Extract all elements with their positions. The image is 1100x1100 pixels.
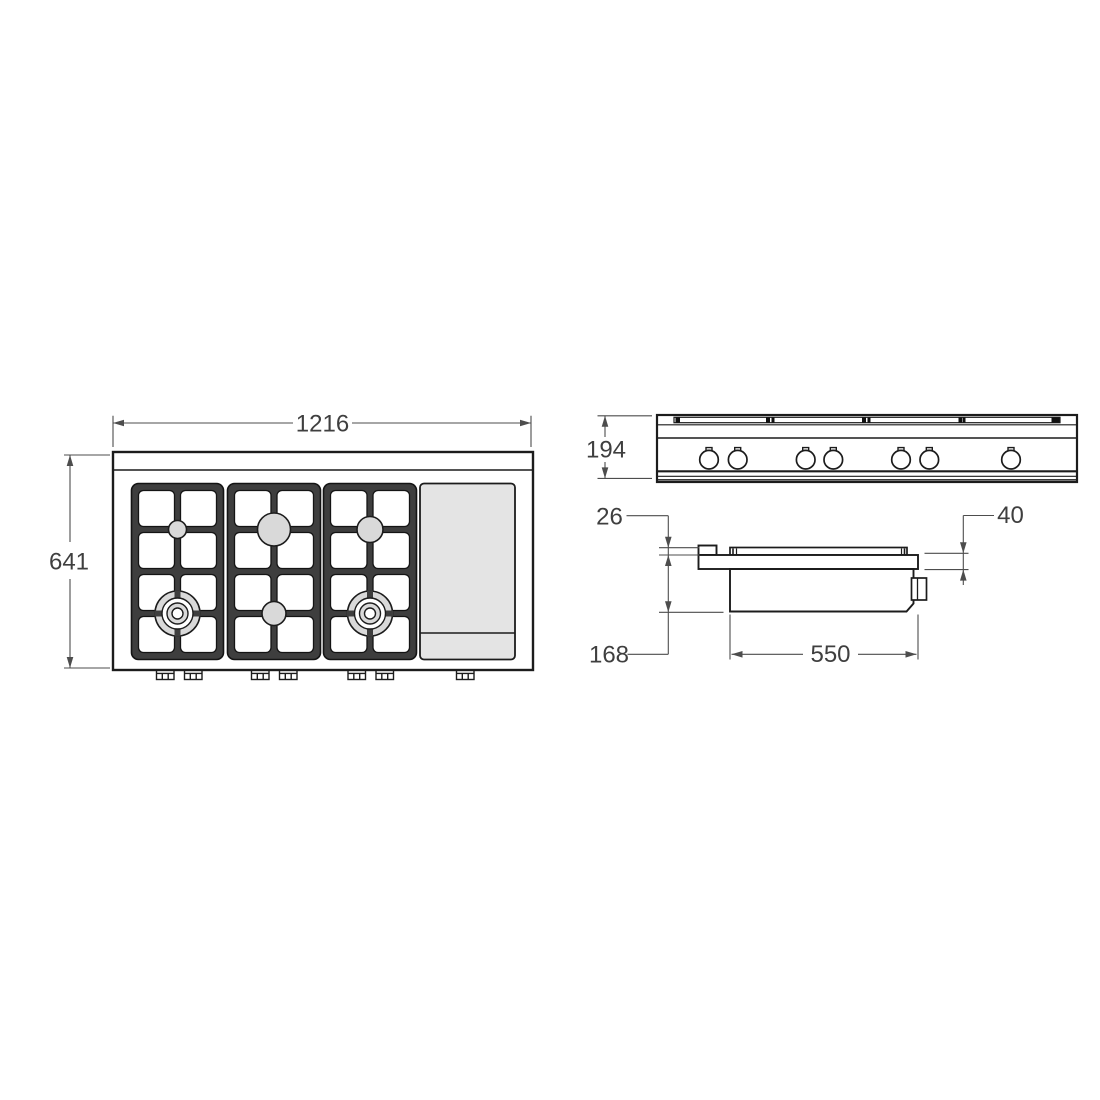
worktop-profile (699, 555, 919, 569)
burner-grate-1 (132, 484, 224, 660)
knob-tabs-plan (157, 671, 475, 680)
burner-grate-2 (228, 484, 321, 660)
grate-cell (139, 491, 175, 527)
knob-tab (376, 671, 394, 680)
dim-body-depth: 550 (730, 615, 918, 669)
top-view (113, 452, 533, 680)
burner-simmer (169, 521, 187, 539)
dim-front-height: 194 (586, 416, 652, 479)
grate-edge-band (674, 417, 1060, 422)
front-view (657, 415, 1077, 482)
dim-label-body-depth: 550 (810, 641, 850, 668)
dim-label-overall-depth: 641 (49, 549, 89, 576)
dim-label-grate-above-top: 26 (596, 504, 623, 531)
knob-tab (348, 671, 366, 680)
burner-medium (262, 602, 286, 626)
grate-cell (181, 533, 217, 569)
side-view (699, 546, 927, 612)
dim-top-thickness: 40 (925, 502, 1024, 585)
knob-tab (280, 671, 298, 680)
dim-label-overall-width: 1216 (296, 411, 349, 438)
burner-wok (155, 591, 201, 637)
gas-connector (912, 578, 927, 600)
dim-grate-and-body: 26 168 (589, 504, 724, 669)
burner-rapid (258, 513, 291, 546)
front-trim-profile (699, 546, 717, 556)
body-profile (730, 569, 914, 612)
burner-medium (357, 517, 383, 543)
knob-tab (185, 671, 203, 680)
dim-label-depth-below-top: 168 (589, 642, 629, 669)
cooktop-dimension-drawing: 1216 641 194 26 168 (0, 0, 1100, 1100)
knob-tab (157, 671, 175, 680)
dim-overall-depth: 641 (49, 455, 110, 668)
burner-grate-3 (324, 484, 417, 660)
technical-drawing-page: 1216 641 194 26 168 (0, 0, 1100, 1100)
knob-tab (252, 671, 270, 680)
dim-label-front-height: 194 (586, 437, 626, 464)
burner-wok (347, 591, 393, 637)
knob-tab (457, 671, 475, 680)
dim-overall-width: 1216 (113, 411, 531, 448)
griddle-plate (420, 484, 515, 660)
grate-cell (181, 491, 217, 527)
grate-cell (139, 533, 175, 569)
grate-profile (730, 548, 907, 556)
dim-label-top-above-counter: 40 (997, 502, 1024, 529)
